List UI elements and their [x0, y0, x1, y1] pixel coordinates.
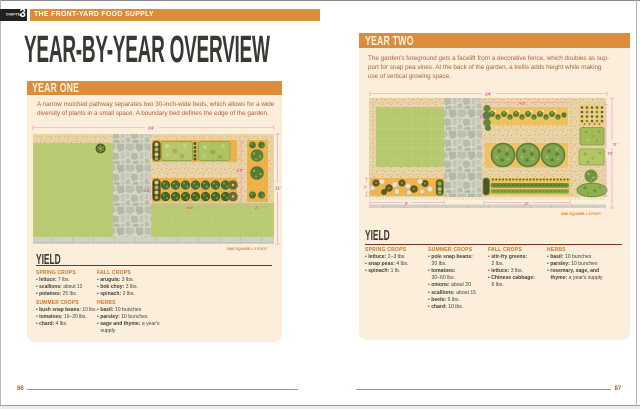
svg-text:24': 24' — [485, 92, 491, 97]
svg-text:11': 11' — [275, 186, 281, 191]
svg-text:2.5: 2.5 — [144, 188, 150, 193]
svg-text:12': 12' — [524, 201, 529, 206]
svg-text:11': 11' — [613, 142, 618, 147]
svg-text:8': 8' — [405, 201, 408, 206]
svg-text:1.5: 1.5 — [480, 116, 485, 120]
svg-text:4.5': 4.5' — [519, 101, 526, 106]
svg-text:9.5': 9.5' — [187, 205, 194, 210]
svg-text:2': 2' — [364, 186, 367, 190]
svg-text:6.5': 6.5' — [237, 168, 244, 173]
svg-text:24': 24' — [148, 126, 154, 131]
svg-text:2': 2' — [255, 205, 258, 210]
